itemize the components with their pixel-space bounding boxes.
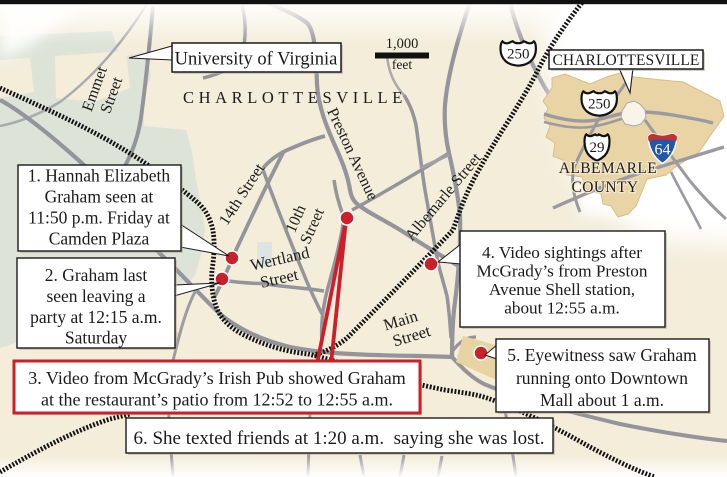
svg-text:feet: feet [392, 57, 412, 72]
svg-text:6. She texted friends at 1:20: 6. She texted friends at 1:20 a.m. sayin… [133, 428, 544, 449]
svg-text:seen leaving a: seen leaving a [46, 286, 145, 306]
svg-text:ALBEMARLE: ALBEMARLE [559, 160, 657, 177]
svg-text:CHARLOTTESVILLE: CHARLOTTESVILLE [183, 88, 407, 107]
svg-text:Mall about 1 a.m.: Mall about 1 a.m. [540, 390, 664, 410]
svg-text:at the restaurant’s patio from: at the restaurant’s patio from 12:52 to … [41, 390, 393, 410]
svg-text:COUNTY: COUNTY [572, 179, 639, 196]
svg-text:party at 12:15 a.m.: party at 12:15 a.m. [30, 307, 162, 327]
svg-text:CHARLOTTESVILLE: CHARLOTTESVILLE [552, 52, 699, 69]
svg-text:Graham seen at: Graham seen at [45, 187, 154, 207]
svg-text:University of Virginia: University of Virginia [175, 50, 338, 70]
svg-text:Saturday: Saturday [65, 328, 127, 348]
svg-text:Avenue Shell station,: Avenue Shell station, [489, 280, 635, 299]
svg-text:about 12:55 a.m.: about 12:55 a.m. [504, 299, 620, 318]
svg-text:64: 64 [655, 142, 671, 159]
svg-text:McGrady’s from Preston: McGrady’s from Preston [477, 262, 648, 281]
svg-text:1. Hannah Elizabeth: 1. Hannah Elizabeth [28, 166, 171, 186]
svg-text:250: 250 [588, 97, 611, 113]
svg-text:2. Graham last: 2. Graham last [45, 265, 148, 285]
svg-text:5. Eyewitness saw Graham: 5. Eyewitness saw Graham [507, 345, 697, 365]
svg-text:running onto Downtown: running onto Downtown [516, 368, 688, 388]
svg-text:11:50 p.m. Friday at: 11:50 p.m. Friday at [28, 208, 170, 228]
svg-text:Camden Plaza: Camden Plaza [49, 229, 150, 249]
svg-text:4. Video sightings after: 4. Video sightings after [482, 243, 642, 262]
svg-text:250: 250 [507, 47, 530, 63]
svg-text:1,000: 1,000 [386, 36, 419, 52]
svg-text:29: 29 [590, 140, 605, 156]
svg-text:3. Video from McGrady’s Irish: 3. Video from McGrady’s Irish Pub showed… [28, 368, 406, 388]
